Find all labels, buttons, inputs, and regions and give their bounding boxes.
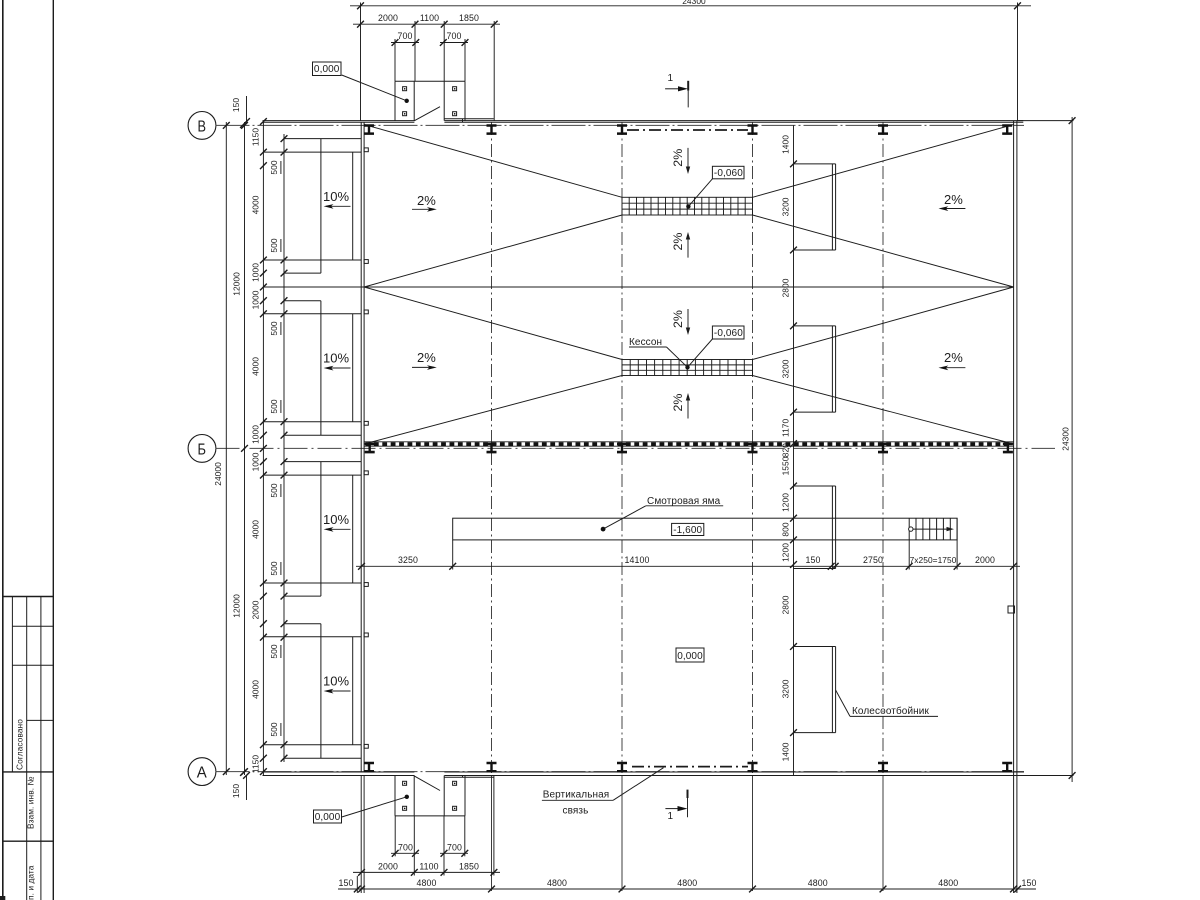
svg-text:1000: 1000 <box>251 425 261 444</box>
svg-text:1000: 1000 <box>251 263 261 282</box>
svg-text:2%: 2% <box>671 310 685 328</box>
svg-text:связь: связь <box>563 805 589 816</box>
svg-text:2000: 2000 <box>378 861 398 871</box>
svg-text:0,000: 0,000 <box>677 651 703 662</box>
svg-text:800: 800 <box>781 522 791 536</box>
svg-text:500: 500 <box>269 399 279 413</box>
svg-text:150: 150 <box>1022 878 1037 888</box>
svg-text:1400: 1400 <box>781 742 791 761</box>
svg-text:500: 500 <box>269 160 279 174</box>
svg-text:Взам. инв. №: Взам. инв. № <box>26 777 36 830</box>
svg-text:1850: 1850 <box>459 13 479 23</box>
svg-text:500: 500 <box>269 644 279 658</box>
svg-text:4800: 4800 <box>547 878 567 888</box>
svg-text:2000: 2000 <box>378 13 398 23</box>
svg-text:4800: 4800 <box>938 878 958 888</box>
svg-text:500: 500 <box>269 238 279 252</box>
svg-text:1400: 1400 <box>781 135 791 154</box>
svg-text:700: 700 <box>398 842 413 852</box>
svg-text:150: 150 <box>231 98 241 112</box>
svg-text:4800: 4800 <box>808 878 828 888</box>
svg-text:150: 150 <box>339 878 354 888</box>
svg-text:700: 700 <box>447 842 462 852</box>
svg-text:500: 500 <box>269 722 279 736</box>
svg-text:1150: 1150 <box>251 128 261 147</box>
svg-text:4000: 4000 <box>251 195 261 214</box>
svg-text:1200: 1200 <box>781 493 791 512</box>
svg-text:4000: 4000 <box>251 357 261 376</box>
svg-text:2%: 2% <box>671 233 685 251</box>
svg-text:-0,060: -0,060 <box>714 168 743 179</box>
svg-text:3200: 3200 <box>781 359 791 378</box>
svg-text:500: 500 <box>269 483 279 497</box>
svg-text:Б: Б <box>198 441 207 458</box>
svg-text:150: 150 <box>806 555 821 565</box>
svg-text:4000: 4000 <box>251 520 261 539</box>
svg-text:1200: 1200 <box>781 543 791 562</box>
svg-text:2000: 2000 <box>975 555 995 565</box>
svg-text:0,000: 0,000 <box>314 64 340 75</box>
svg-text:1000: 1000 <box>251 290 261 309</box>
svg-text:820: 820 <box>781 443 791 457</box>
svg-text:12000: 12000 <box>232 272 242 296</box>
svg-text:4800: 4800 <box>677 878 697 888</box>
svg-text:Смотровая яма: Смотровая яма <box>647 496 721 507</box>
svg-text:2000: 2000 <box>251 600 261 619</box>
svg-text:24000: 24000 <box>213 462 223 486</box>
svg-text:4000: 4000 <box>251 680 261 699</box>
svg-text:Кессон: Кессон <box>629 337 662 348</box>
svg-text:2800: 2800 <box>781 278 791 297</box>
svg-text:10%: 10% <box>323 512 349 527</box>
svg-text:1100: 1100 <box>419 861 438 871</box>
svg-text:10%: 10% <box>323 674 349 689</box>
svg-text:4800: 4800 <box>417 878 437 888</box>
svg-text:2%: 2% <box>944 350 963 365</box>
svg-text:2%: 2% <box>417 193 436 208</box>
svg-text:150: 150 <box>231 784 241 798</box>
svg-text:700: 700 <box>398 31 413 41</box>
svg-text:10%: 10% <box>323 189 349 204</box>
svg-text:3200: 3200 <box>781 197 791 216</box>
svg-text:В: В <box>198 118 207 135</box>
svg-text:1170: 1170 <box>781 419 791 438</box>
svg-text:0,000: 0,000 <box>315 812 341 823</box>
svg-text:500: 500 <box>269 561 279 575</box>
svg-text:2%: 2% <box>671 149 685 167</box>
svg-text:10%: 10% <box>323 351 349 366</box>
svg-text:1150: 1150 <box>251 755 261 774</box>
svg-text:2%: 2% <box>417 350 436 365</box>
svg-text:1850: 1850 <box>459 861 479 871</box>
svg-text:1: 1 <box>668 73 674 84</box>
svg-text:3250: 3250 <box>398 555 418 565</box>
svg-text:1550: 1550 <box>781 456 791 475</box>
svg-text:2%: 2% <box>671 394 685 412</box>
svg-text:12000: 12000 <box>232 594 242 618</box>
svg-text:3200: 3200 <box>781 679 791 698</box>
svg-text:2750: 2750 <box>863 555 883 565</box>
svg-text:А: А <box>197 765 207 782</box>
svg-text:24300: 24300 <box>1061 427 1071 451</box>
svg-text:2%: 2% <box>944 192 963 207</box>
svg-text:7х250=1750: 7х250=1750 <box>910 555 957 565</box>
svg-text:-1,600: -1,600 <box>673 525 702 536</box>
svg-text:1000: 1000 <box>251 452 261 471</box>
svg-text:Согласовано: Согласовано <box>15 719 25 770</box>
svg-text:1: 1 <box>668 811 674 822</box>
svg-text:Колесоотбойник: Колесоотбойник <box>852 705 929 717</box>
svg-text:500: 500 <box>269 321 279 335</box>
svg-text:14100: 14100 <box>625 555 650 565</box>
svg-text:-0,060: -0,060 <box>714 328 743 339</box>
svg-text:п. и дата: п. и дата <box>26 865 36 900</box>
svg-text:1100: 1100 <box>420 13 439 23</box>
svg-text:700: 700 <box>447 31 462 41</box>
svg-text:2800: 2800 <box>781 595 791 614</box>
svg-text:Вертикальная: Вертикальная <box>543 790 610 801</box>
svg-text:24300: 24300 <box>682 0 706 6</box>
